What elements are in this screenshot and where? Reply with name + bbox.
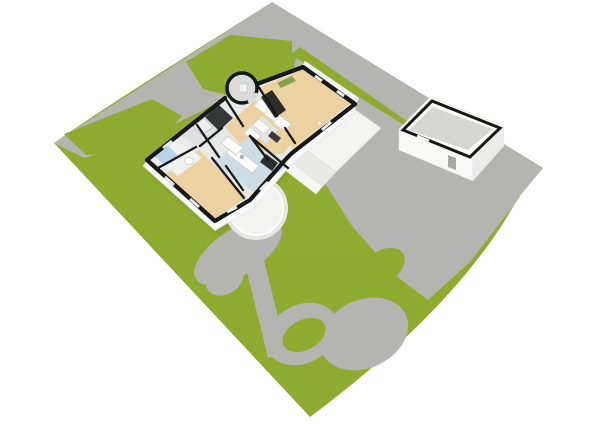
turret-column — [239, 84, 247, 92]
toilet — [185, 158, 194, 165]
ground-texture — [0, 0, 600, 424]
living-floor-dot — [319, 122, 322, 125]
site-render: Aerial 3D floor plan site render — [0, 0, 600, 424]
kitchen-sink — [240, 155, 244, 159]
site-ground — [0, 0, 600, 424]
entry-turret — [227, 73, 257, 103]
floorplan-3d-viewport[interactable]: Aerial 3D floor plan site render — [0, 0, 600, 424]
